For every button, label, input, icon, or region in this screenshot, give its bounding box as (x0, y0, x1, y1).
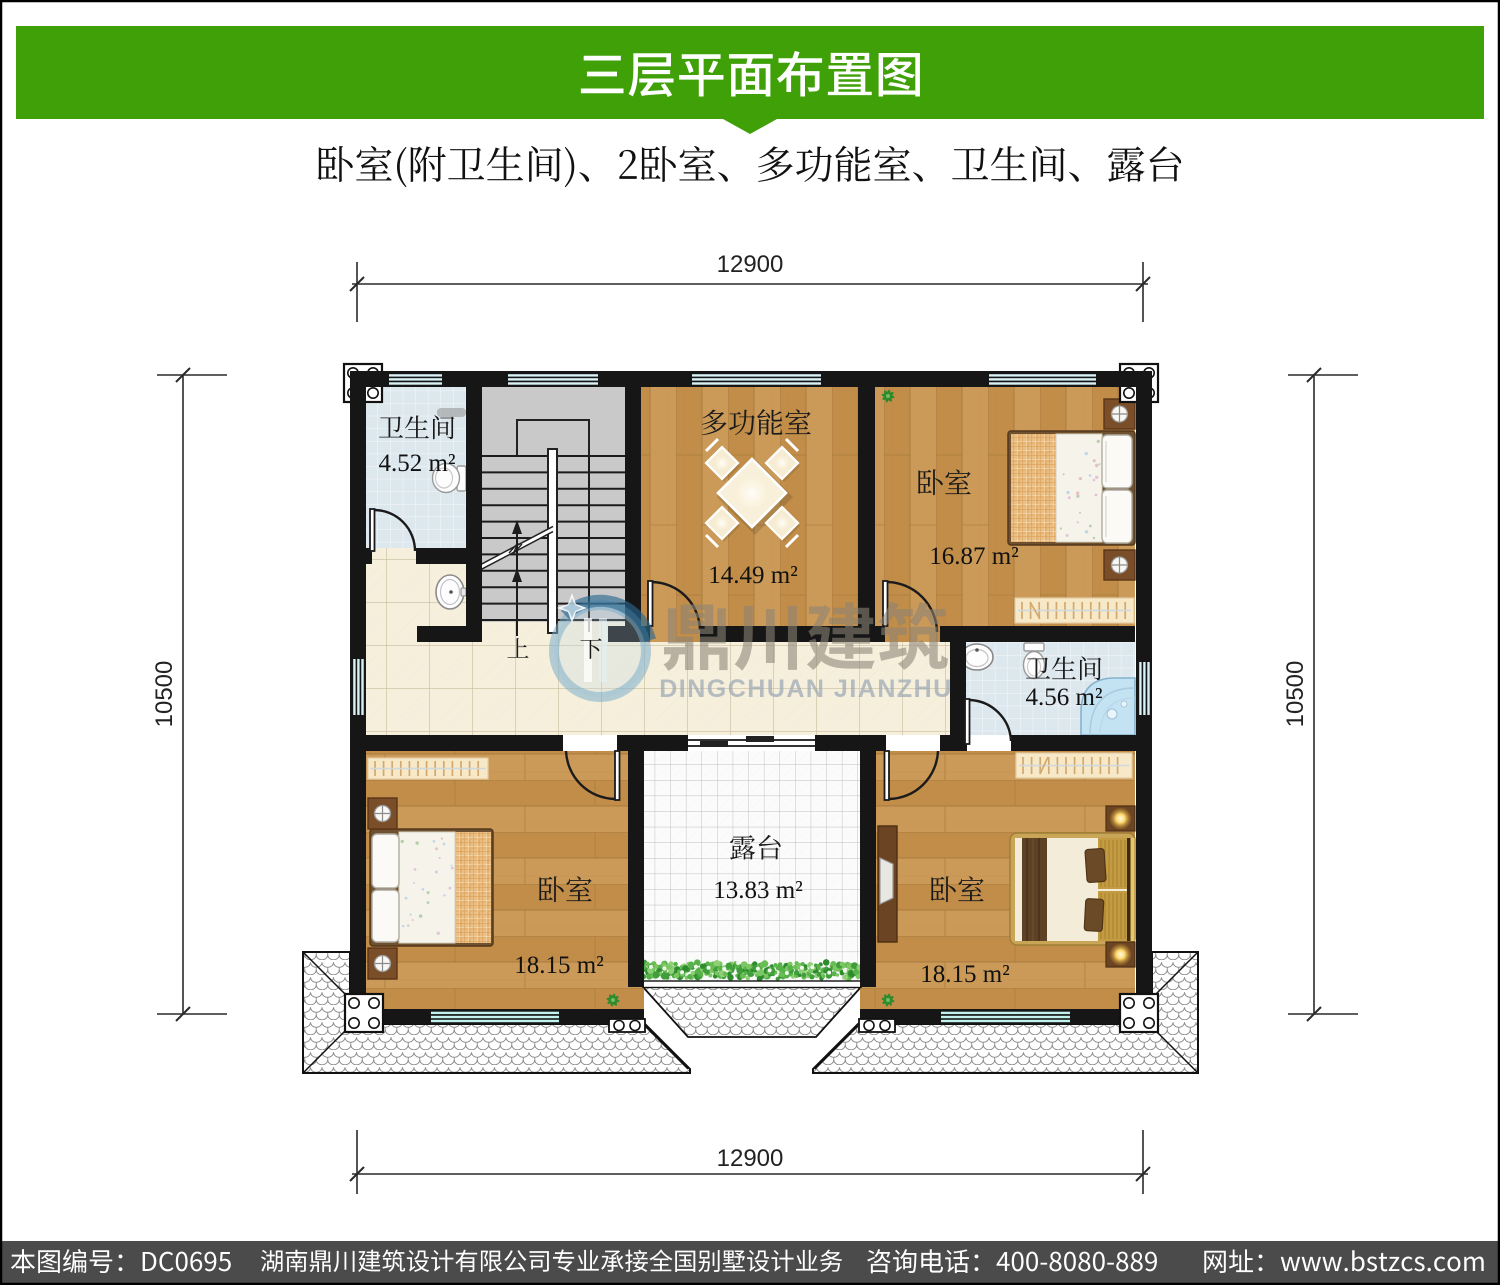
svg-text:13.83 m²: 13.83 m² (713, 877, 802, 904)
svg-text:4.52 m²: 4.52 m² (379, 450, 456, 477)
svg-text:DINGCHUAN JIANZHU: DINGCHUAN JIANZHU (659, 675, 953, 703)
svg-text:10500: 10500 (1282, 661, 1309, 728)
svg-text:18.15 m²: 18.15 m² (920, 961, 1009, 988)
svg-text:16.87 m²: 16.87 m² (929, 543, 1018, 570)
svg-text:10500: 10500 (151, 661, 178, 728)
svg-text:12900: 12900 (717, 251, 784, 278)
svg-text:4.56 m²: 4.56 m² (1026, 684, 1103, 711)
svg-text:18.15 m²: 18.15 m² (514, 952, 603, 979)
svg-text:12900: 12900 (717, 1145, 784, 1172)
svg-text:14.49 m²: 14.49 m² (708, 562, 797, 589)
